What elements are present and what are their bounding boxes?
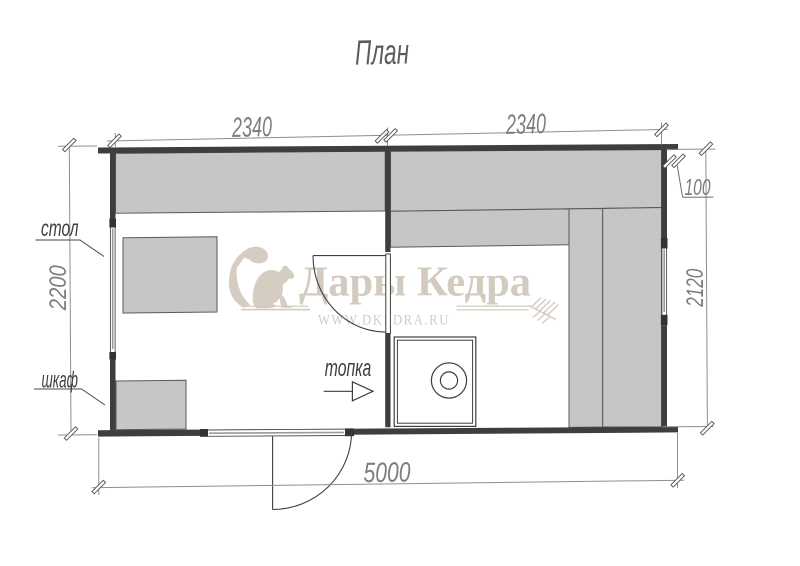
svg-text:топка: топка [325,355,372,382]
svg-text:5000: 5000 [363,456,411,488]
svg-text:2340: 2340 [505,108,547,140]
svg-text:2200: 2200 [45,265,72,311]
svg-text:2340: 2340 [231,111,273,143]
svg-text:100: 100 [685,174,711,200]
svg-text:стол: стол [41,215,79,241]
svg-text:WWW.DKEDRA.RU: WWW.DKEDRA.RU [318,313,450,329]
svg-text:План: План [355,32,410,72]
svg-text:2120: 2120 [682,268,709,307]
svg-text:Дары Кедра: Дары Кедра [299,260,531,306]
